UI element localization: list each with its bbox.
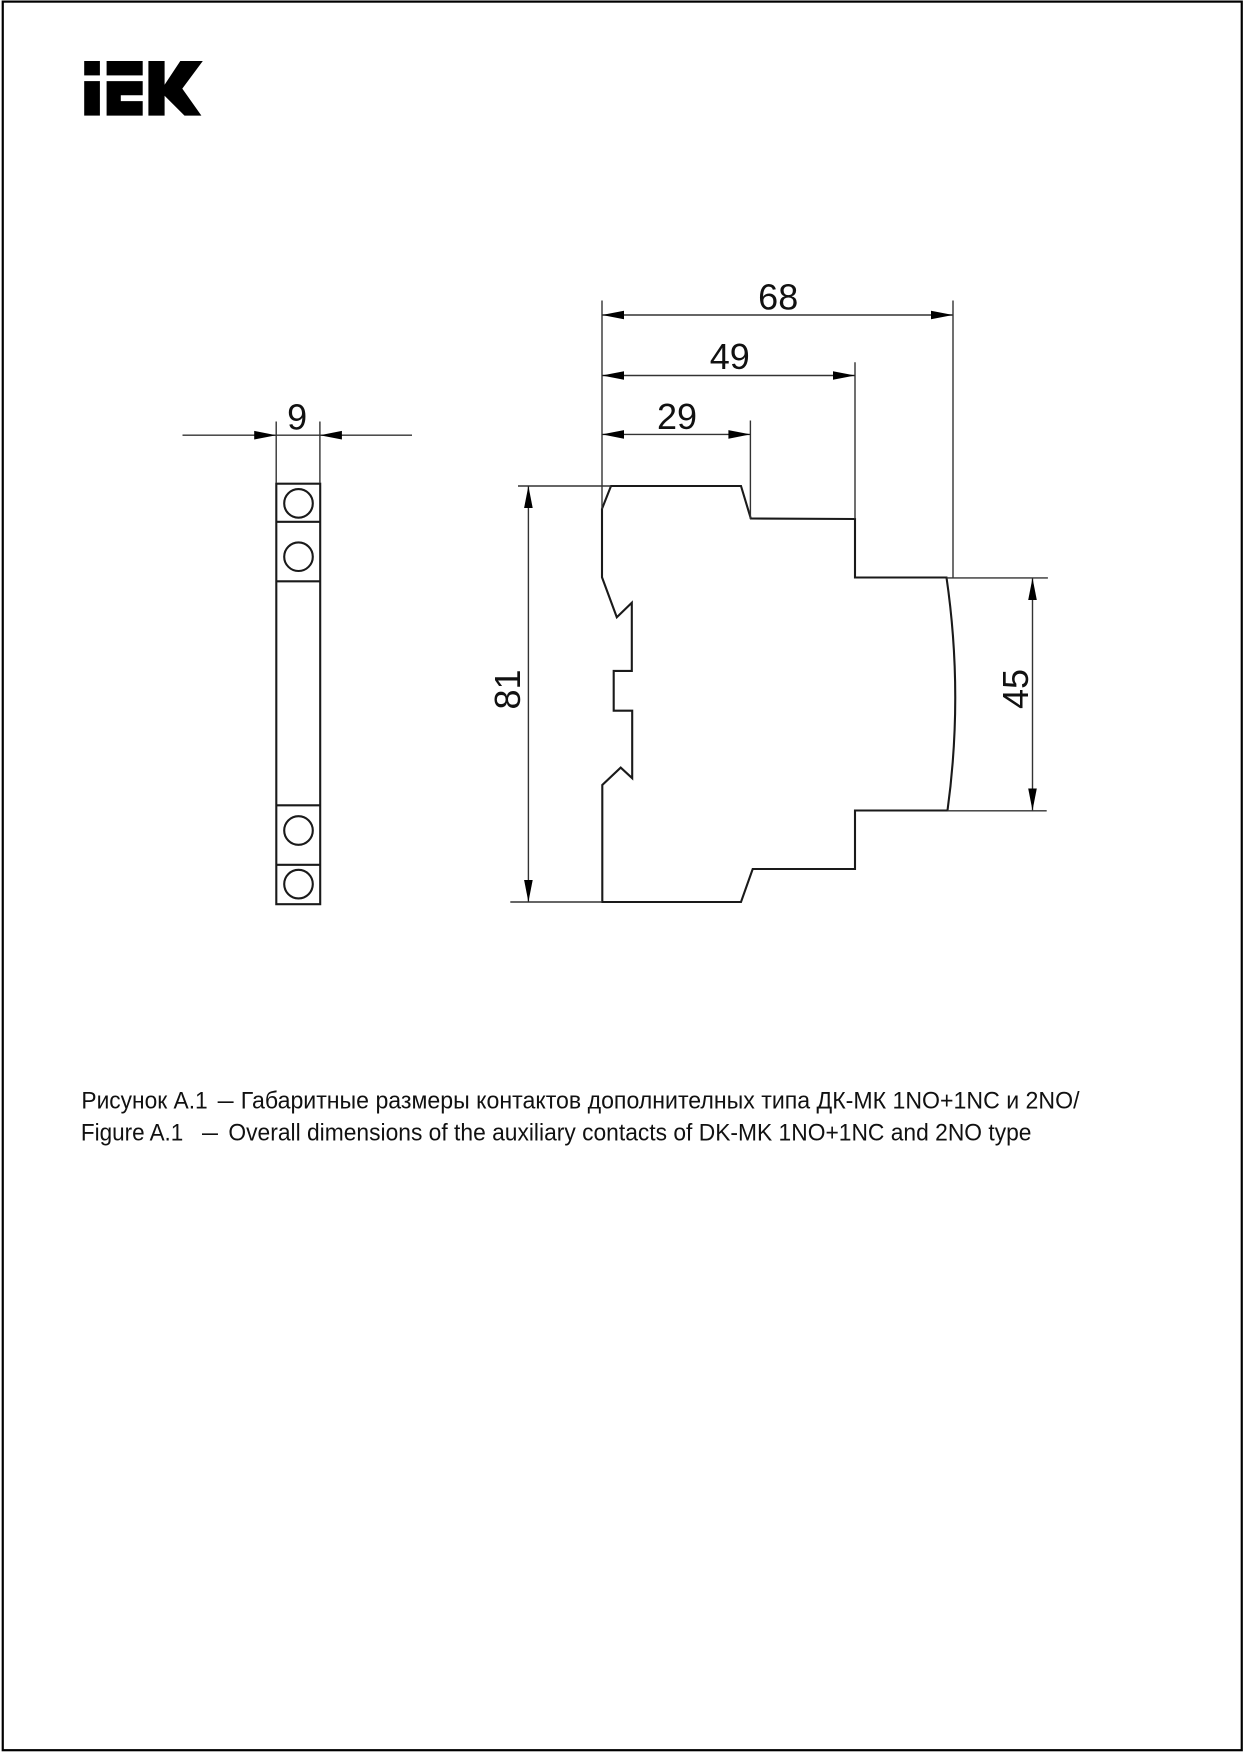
svg-text:Figure A.1: Figure A.1 [81,1120,183,1147]
svg-text:45: 45 [995,669,1036,709]
svg-text:Overall dimensions of the auxi: Overall dimensions of the auxiliary cont… [228,1120,1031,1147]
svg-text:49: 49 [710,336,750,377]
svg-text:–: – [218,1088,235,1115]
svg-text:68: 68 [758,277,798,318]
svg-text:81: 81 [487,669,528,709]
svg-text:Рисунок А.1: Рисунок А.1 [81,1088,207,1115]
svg-text:29: 29 [657,396,697,437]
svg-text:Габаритные размеры контактов д: Габаритные размеры контактов дополнителн… [241,1088,1080,1115]
svg-text:–: – [202,1120,219,1147]
svg-text:9: 9 [287,397,307,438]
